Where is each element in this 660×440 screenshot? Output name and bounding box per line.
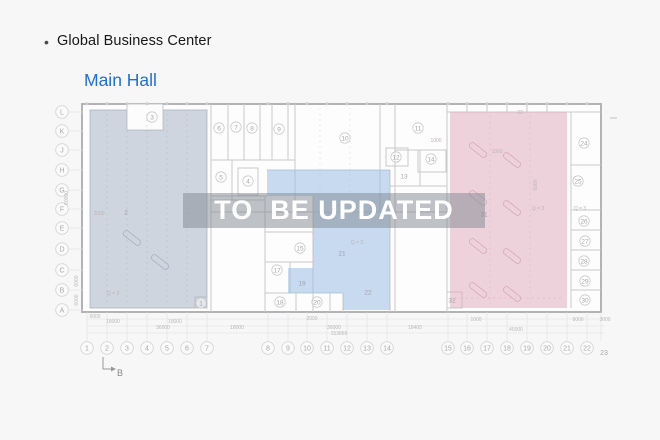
room-number: 29 xyxy=(581,278,589,285)
vertical-dimension-label: 6000 xyxy=(74,275,80,286)
room-number: 27 xyxy=(581,238,589,245)
bottom-axis-label: 19 xyxy=(523,346,531,353)
bottom-axis-label: 11 xyxy=(323,346,330,353)
bottom-axis-label: 14 xyxy=(383,346,391,353)
dimension-label: 18000 xyxy=(106,319,120,325)
room-number: 20 xyxy=(313,299,321,306)
top-tick xyxy=(486,102,489,105)
room-number: 22 xyxy=(364,289,372,296)
room-number: 30 xyxy=(581,297,589,304)
dimension-label: 153669 xyxy=(331,331,348,337)
vertical-dimension-label: 6000 xyxy=(74,294,80,305)
top-tick xyxy=(186,102,189,105)
room-number: 28 xyxy=(580,258,588,265)
bottom-axis-label: 13 xyxy=(363,346,371,353)
vertical-dimension-label: 60000 xyxy=(64,191,70,205)
left-axis-label: D xyxy=(59,247,64,254)
top-tick xyxy=(586,102,589,105)
top-tick xyxy=(447,102,450,105)
left-axis-label: K xyxy=(60,129,65,136)
bottom-axis-label: 22 xyxy=(583,346,591,353)
top-tick xyxy=(546,102,549,105)
room-number: 5 xyxy=(219,174,223,181)
room-number: 4 xyxy=(246,178,250,185)
dimension-label: 18000 xyxy=(168,319,182,325)
room-number: 9 xyxy=(277,126,281,133)
dimension-label: 36000 xyxy=(156,325,170,331)
bottom-axis-label: 5 xyxy=(165,346,169,353)
room-number: 8 xyxy=(250,125,254,132)
left-axis-label: C xyxy=(59,268,64,275)
bottom-axis-label: 16 xyxy=(463,346,471,353)
dimension-label: 3000 xyxy=(599,317,610,323)
top-tick xyxy=(466,102,469,105)
top-tick xyxy=(86,102,89,105)
watermark-banner: TO BE UPDATED xyxy=(183,193,485,228)
bottom-axis-label: 17 xyxy=(483,346,491,353)
room-number: 10 xyxy=(341,135,349,142)
plan-note: 1000 xyxy=(491,149,502,155)
top-tick xyxy=(526,102,529,105)
bottom-axis-label: 1 xyxy=(85,346,89,353)
room-number: 6 xyxy=(217,125,221,132)
top-tick xyxy=(386,102,389,105)
left-axis-label: H xyxy=(59,168,64,175)
bottom-axis-label: 9 xyxy=(286,346,290,353)
dimension-label: 1000 xyxy=(470,317,481,323)
plan-note: 2000 xyxy=(93,211,104,217)
dimension-label: 18400 xyxy=(408,325,422,331)
top-tick xyxy=(106,102,109,105)
section-marker: B xyxy=(103,357,123,378)
top-tick xyxy=(366,102,369,105)
bottom-axis-label: 4 xyxy=(145,346,149,353)
left-axis-label: L xyxy=(60,110,64,117)
top-tick xyxy=(346,102,349,105)
bottom-axis-label: 3 xyxy=(125,346,129,353)
section-marker-label: B xyxy=(117,368,123,378)
left-axis-label: J xyxy=(60,148,64,155)
top-tick xyxy=(287,102,290,105)
room-number: 14 xyxy=(427,156,435,163)
section-arrow-icon xyxy=(111,367,116,372)
room-number: 2 xyxy=(124,209,128,216)
room-number: 13 xyxy=(400,173,408,180)
room-number: 32 xyxy=(448,297,456,304)
room-number: 25 xyxy=(574,178,582,185)
top-tick xyxy=(206,102,209,105)
bottom-axis-label: 12 xyxy=(343,346,351,353)
left-axis-label: B xyxy=(60,288,65,295)
dimension-label: 6000 xyxy=(572,317,583,323)
bottom-axis-label: 6 xyxy=(185,346,189,353)
top-tick xyxy=(126,102,129,105)
bottom-axis-label: 2 xyxy=(105,346,109,353)
bottom-axis-label: 18 xyxy=(503,346,511,353)
bottom-axis-label: 7 xyxy=(205,346,209,353)
dimension-label: 2000 xyxy=(306,316,317,322)
top-tick xyxy=(306,102,309,105)
screen: • Global Business Center Main Hall xyxy=(0,0,660,440)
left-axis-label: F xyxy=(60,207,64,214)
room-number: 21 xyxy=(338,250,346,257)
room-number: 24 xyxy=(580,140,588,147)
bottom-axis-label: 15 xyxy=(444,346,452,353)
bottom-axis-label: 10 xyxy=(303,346,311,353)
dimension-label: 45000 xyxy=(509,327,523,333)
plan-note: Q = 3 xyxy=(107,291,120,297)
room-number: 17 xyxy=(273,267,281,274)
room-number: 3 xyxy=(150,114,154,121)
room-number: 26 xyxy=(580,218,588,225)
left-axis-label: A xyxy=(60,308,65,315)
bottom-axis-label: 23 xyxy=(600,350,608,357)
room-number: 18 xyxy=(276,299,284,306)
left-axis-label: E xyxy=(60,226,65,233)
top-tick xyxy=(566,102,569,105)
room-number: 1 xyxy=(199,300,203,307)
top-tick xyxy=(506,102,509,105)
top-tick xyxy=(146,102,149,105)
plan-note: Q = 3 xyxy=(351,240,364,246)
bottom-axis-label: 20 xyxy=(543,346,551,353)
plan-note: Q = 3 xyxy=(574,206,587,212)
dimension-label: 6000 xyxy=(89,314,100,320)
plan-note: 1000 xyxy=(430,138,441,144)
top-tick xyxy=(166,102,169,105)
top-tick xyxy=(326,102,329,105)
room-number: 7 xyxy=(234,124,238,131)
bottom-axis-label: 8 xyxy=(266,346,270,353)
top-tick xyxy=(267,102,270,105)
room-number: 15 xyxy=(296,245,304,252)
room-number: 19 xyxy=(298,280,306,287)
bottom-axis-label: 21 xyxy=(563,346,571,353)
plan-note: 23 xyxy=(517,110,523,116)
room-number: 11 xyxy=(415,125,422,132)
watermark-text: TO BE UPDATED xyxy=(214,195,454,226)
vertical-dimension-label: 6000 xyxy=(533,179,539,190)
dimension-label: 18000 xyxy=(230,325,244,331)
plan-note: Q = 3 xyxy=(532,206,545,212)
room-number: 12 xyxy=(392,154,400,161)
